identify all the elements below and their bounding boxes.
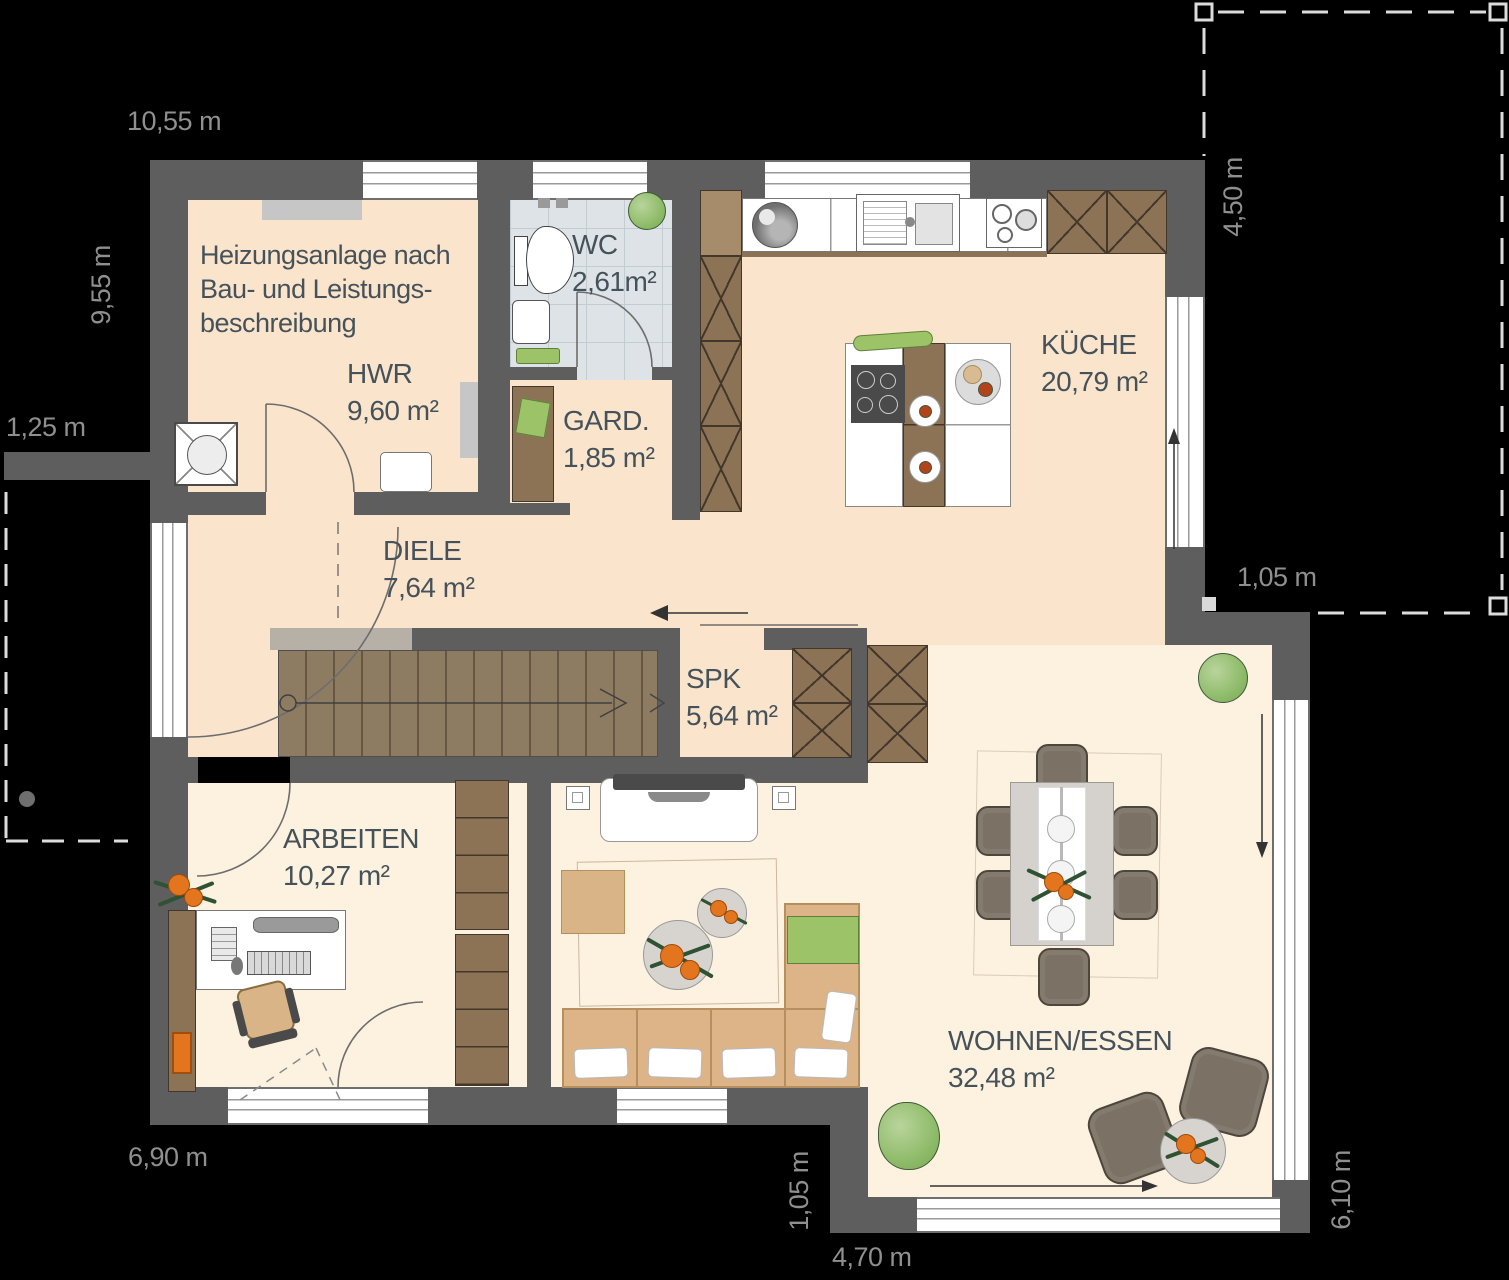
room-area-spk: 5,64 m² xyxy=(686,697,777,734)
room-name-wc: WC xyxy=(572,226,656,263)
living-right-window-arrow-head xyxy=(1256,842,1268,858)
room-label-arbeiten: ARBEITEN 10,27 m² xyxy=(283,820,419,894)
terrace-post-top-left xyxy=(1196,4,1212,20)
entry-arrow-head xyxy=(650,605,668,621)
room-label-spk: SPK 5,64 m² xyxy=(686,660,777,734)
stair-arrow-start xyxy=(280,695,296,711)
arbeiten-door-arc xyxy=(197,783,290,876)
entrance-door-arc xyxy=(188,527,398,737)
room-label-diele: DIELE 7,64 m² xyxy=(383,532,474,606)
spk-door-marker xyxy=(650,694,664,712)
terrace-door-tilt-marks xyxy=(240,1048,342,1104)
room-label-kueche: KÜCHE 20,79 m² xyxy=(1041,326,1148,400)
room-name-spk: SPK xyxy=(686,660,777,697)
room-area-kueche: 20,79 m² xyxy=(1041,363,1148,400)
floor-plan: Heizungsanlage nach Bau- und Leistungs- … xyxy=(0,0,1509,1280)
dim-bottom-right: 6,10 m xyxy=(1326,1120,1356,1260)
room-area-arbeiten: 10,27 m² xyxy=(283,857,419,894)
wc-door-arc xyxy=(577,292,652,367)
terrace-post-bottom-right xyxy=(1490,598,1506,614)
hwr-note-line3: beschreibung xyxy=(200,306,450,340)
room-name-kueche: KÜCHE xyxy=(1041,326,1148,363)
hwr-note-line2: Bau- und Leistungs- xyxy=(200,272,450,306)
room-name-arbeiten: ARBEITEN xyxy=(283,820,419,857)
room-area-wohnen: 32,48 m² xyxy=(948,1059,1172,1096)
room-name-hwr: HWR xyxy=(347,355,438,392)
dim-bottom-left: 6,90 m xyxy=(128,1142,208,1173)
living-bottom-window-arrow-head xyxy=(1142,1180,1158,1192)
room-area-hwr: 9,60 m² xyxy=(347,392,438,429)
room-area-gard: 1,85 m² xyxy=(563,439,654,476)
room-label-wohnen: WOHNEN/ESSEN 32,48 m² xyxy=(948,1022,1172,1096)
hwr-note: Heizungsanlage nach Bau- und Leistungs- … xyxy=(200,238,450,340)
hwr-note-line1: Heizungsanlage nach xyxy=(200,238,450,272)
terrace-door-arc xyxy=(338,1002,423,1087)
dim-bottom-mid: 1,05 m xyxy=(784,1121,814,1261)
room-area-wc: 2,61m² xyxy=(572,263,656,300)
dim-bottom-terrace: 4,70 m xyxy=(832,1242,912,1273)
dim-porch: 1,25 m xyxy=(6,412,86,443)
dim-right-mid: 1,05 m xyxy=(1237,562,1317,593)
room-name-wohnen: WOHNEN/ESSEN xyxy=(948,1022,1172,1059)
hwr-door-arc xyxy=(266,404,354,492)
room-label-hwr: HWR 9,60 m² xyxy=(347,355,438,429)
porch-post xyxy=(19,791,35,807)
dim-left-height: 9,55 m xyxy=(86,215,116,355)
terrace-post-top-right xyxy=(1490,4,1506,20)
kitchen-window-arrow-head xyxy=(1168,428,1180,444)
room-label-gard: GARD. 1,85 m² xyxy=(563,402,654,476)
room-label-wc: WC 2,61m² xyxy=(572,226,656,300)
terrace-corner-marker xyxy=(1202,597,1216,611)
room-name-gard: GARD. xyxy=(563,402,654,439)
plan-linework xyxy=(0,0,1509,1280)
dim-right-upper: 4,50 m xyxy=(1218,127,1248,267)
room-area-diele: 7,64 m² xyxy=(383,569,474,606)
dim-top-width: 10,55 m xyxy=(127,106,221,137)
room-name-diele: DIELE xyxy=(383,532,474,569)
